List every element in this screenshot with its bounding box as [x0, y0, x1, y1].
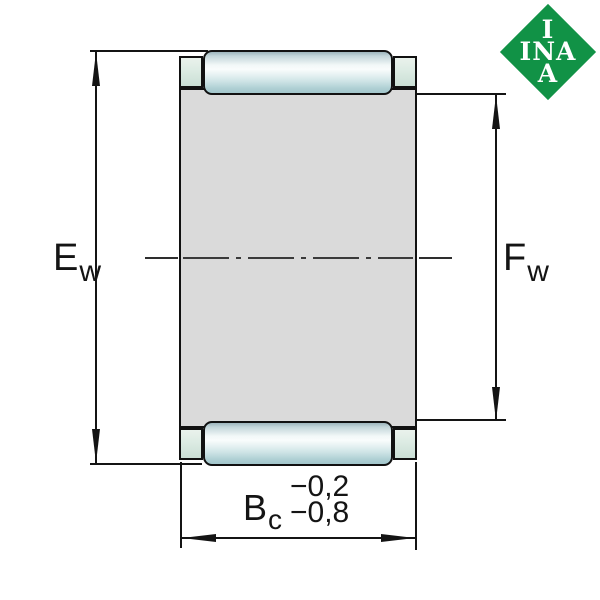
fw-dimension-line	[495, 95, 497, 421]
center-line-left	[145, 257, 178, 259]
needle-roller-top	[203, 50, 393, 95]
fw-symbol: F	[503, 237, 526, 279]
ew-extension-line-bottom	[90, 463, 202, 465]
needle-roller-bottom	[203, 421, 393, 466]
cage-lip-top-right	[393, 56, 417, 88]
cage-lip-top-left	[179, 56, 203, 88]
ew-label: Ew	[53, 239, 100, 277]
ina-logo-line3: A	[500, 63, 596, 85]
ew-arrow-down	[92, 429, 100, 463]
technical-drawing-canvas: Ew Fw Bc −0,2 −0,8 I INA A	[0, 0, 600, 600]
fw-arrow-up	[492, 95, 500, 129]
bc-label-group: Bc −0,2 −0,8	[243, 474, 349, 526]
bc-symbol: B	[243, 487, 267, 528]
center-line-middle	[183, 257, 413, 259]
ew-subscript: w	[79, 255, 101, 288]
center-line-right	[419, 257, 452, 259]
ew-symbol: E	[53, 237, 78, 279]
ina-logo-text: I INA A	[500, 15, 596, 89]
ina-logo: I INA A	[500, 4, 596, 100]
cage-lip-bottom-right	[393, 428, 417, 460]
bc-arrow-right	[381, 534, 415, 542]
cage-lip-bottom-left	[179, 428, 203, 460]
bc-arrow-left	[182, 534, 216, 542]
bc-tolerance-lower: −0,8	[290, 500, 349, 526]
ew-extension-line-top	[90, 50, 208, 52]
bc-label: Bc	[243, 490, 281, 526]
fw-label: Fw	[503, 239, 548, 277]
bc-subscript: c	[268, 504, 282, 535]
fw-subscript: w	[527, 255, 549, 288]
bc-tolerance-stack: −0,2 −0,8	[290, 474, 349, 526]
fw-arrow-down	[492, 387, 500, 421]
ew-arrow-up	[92, 52, 100, 86]
